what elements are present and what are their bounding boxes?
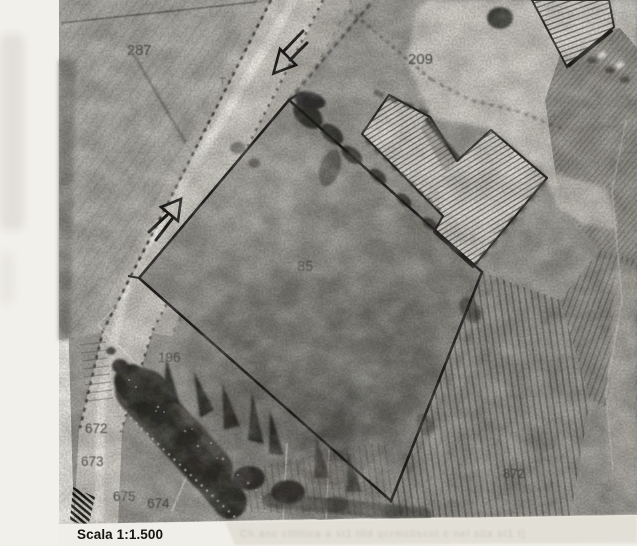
svg-text:Ch anc c0lltica a st1 t0d qcrm: Ch anc c0lltica a st1 t0d qcrmc0scnt c n… [240, 529, 526, 540]
svg-text:Scala 1:1.500: Scala 1:1.500 [77, 527, 163, 542]
